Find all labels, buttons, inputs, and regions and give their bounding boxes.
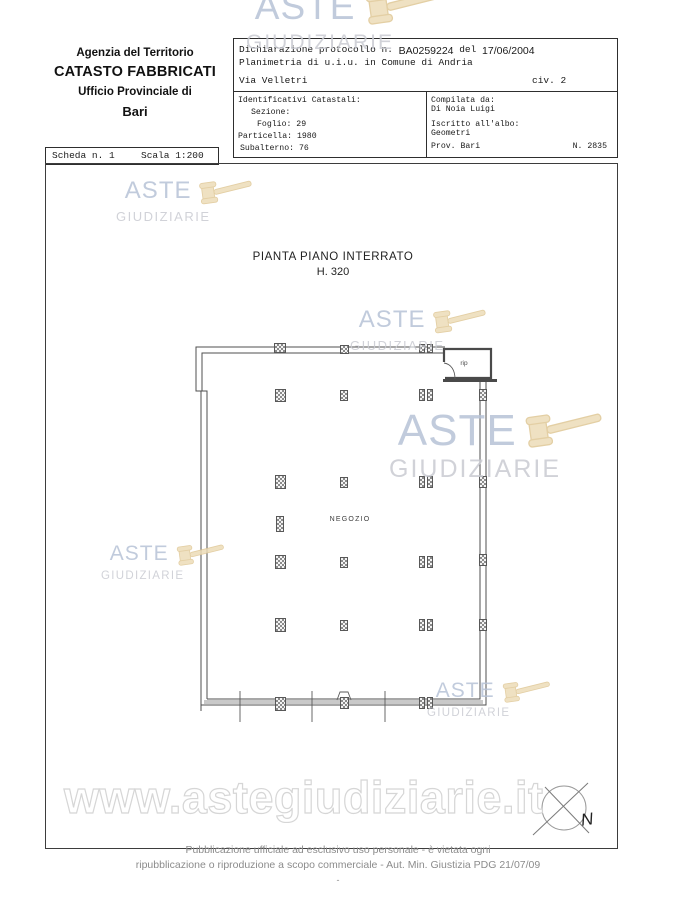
cadastral-particella: Particella: 1980 bbox=[238, 132, 424, 141]
sheet-scale: Scala 1:200 bbox=[141, 148, 204, 163]
cadastral-box: Identificativi Catastali: Sezione: Fogli… bbox=[233, 91, 618, 158]
compass-north-label: N bbox=[580, 809, 595, 831]
cadastral-foglio: Foglio: 29 bbox=[257, 120, 424, 129]
column-pillar bbox=[275, 475, 286, 489]
footer-dash: - bbox=[0, 873, 676, 888]
office-label: Ufficio Provinciale di bbox=[42, 83, 228, 102]
compiler-info: Compilata da: Di Noia Luigi Iscritto all… bbox=[431, 92, 615, 157]
watermark-aste-text: ASTE bbox=[255, 0, 356, 25]
compiler-name: Di Noia Luigi bbox=[431, 105, 615, 114]
cadastral-title: Identificativi Catastali: bbox=[238, 96, 424, 105]
compiler-title: Compilata da: bbox=[431, 96, 615, 105]
cadastral-sezione: Sezione: bbox=[251, 108, 424, 117]
cadastral-box-divider bbox=[426, 92, 427, 157]
column-pillar bbox=[419, 344, 425, 353]
column-pillar bbox=[419, 476, 425, 488]
column-pillar bbox=[479, 619, 487, 631]
column-pillar bbox=[340, 477, 348, 488]
column-pillar bbox=[427, 556, 433, 568]
protocol-date: 17/06/2004 bbox=[482, 45, 535, 57]
plan-height: H. 320 bbox=[133, 266, 533, 278]
room-label-negozio: NEGOZIO bbox=[316, 516, 384, 523]
protocol-row: Dichiarazione protocollo n. BA0259224 de… bbox=[239, 43, 535, 55]
agency-header: Agenzia del Territorio CATASTO FABBRICAT… bbox=[42, 44, 228, 121]
publication-footer: Pubblicazione ufficiale ad esclusivo uso… bbox=[0, 843, 676, 888]
civic-number: civ. 2 bbox=[532, 75, 566, 86]
column-pillar bbox=[427, 619, 433, 631]
cadastral-identifiers: Identificativi Catastali: Sezione: Fogli… bbox=[238, 92, 424, 157]
register-value: Geometri bbox=[431, 129, 615, 138]
column-pillar bbox=[340, 557, 348, 568]
column-pillar bbox=[419, 389, 425, 401]
footer-line-1: Pubblicazione ufficiale ad esclusivo uso… bbox=[0, 843, 676, 858]
column-pillar bbox=[275, 697, 286, 711]
column-pillar bbox=[340, 697, 349, 709]
registry-name: CATASTO FABBRICATI bbox=[42, 62, 228, 83]
column-pillar bbox=[419, 619, 425, 631]
column-pillar bbox=[479, 554, 487, 566]
street-name: Via Velletri bbox=[239, 75, 307, 86]
column-pillar bbox=[340, 390, 348, 401]
footer-line-2: ripubblicazione o riproduzione a scopo c… bbox=[0, 858, 676, 873]
province: Prov. Bari bbox=[431, 142, 480, 151]
cadastral-subalterno: Subalterno: 76 bbox=[240, 144, 424, 153]
agency-name: Agenzia del Territorio bbox=[42, 44, 228, 62]
plan-title-block: PIANTA PIANO INTERRATO H. 320 bbox=[133, 251, 533, 278]
column-pillar bbox=[274, 343, 286, 353]
register-number: N. 2835 bbox=[573, 142, 607, 151]
planimetria-line: Planimetria di u.i.u. in Comune di Andri… bbox=[239, 57, 473, 68]
column-pillar bbox=[275, 618, 286, 632]
column-pillar bbox=[275, 555, 286, 569]
office-city: Bari bbox=[42, 102, 228, 121]
column-pillar bbox=[427, 389, 433, 401]
gavel-icon bbox=[359, 0, 447, 30]
column-pillar bbox=[479, 389, 487, 401]
protocol-label: Dichiarazione protocollo n. bbox=[239, 44, 393, 55]
column-pillar bbox=[276, 516, 284, 532]
column-pillar bbox=[427, 344, 433, 353]
column-pillar bbox=[479, 476, 487, 488]
column-pillar bbox=[419, 697, 425, 709]
protocol-del-label: del bbox=[459, 44, 476, 55]
sheet-number: Scheda n. 1 bbox=[52, 148, 115, 163]
column-pillar bbox=[340, 345, 349, 354]
column-pillar bbox=[275, 389, 286, 402]
plan-title: PIANTA PIANO INTERRATO bbox=[133, 251, 533, 263]
province-row: Prov. Bari N. 2835 bbox=[431, 142, 607, 151]
website-watermark: www.astegiudiziarie.it bbox=[64, 772, 543, 824]
cadastral-document-page: Agenzia del Territorio CATASTO FABBRICAT… bbox=[0, 0, 676, 900]
column-pillar bbox=[340, 620, 348, 631]
protocol-number: BA0259224 bbox=[399, 45, 454, 57]
column-pillar bbox=[419, 556, 425, 568]
column-pillar bbox=[427, 697, 433, 709]
register-label: Iscritto all'albo: bbox=[431, 120, 615, 129]
column-pillar bbox=[427, 476, 433, 488]
closet-label-rip: rip bbox=[452, 360, 476, 367]
protocol-box: Dichiarazione protocollo n. BA0259224 de… bbox=[233, 38, 618, 92]
